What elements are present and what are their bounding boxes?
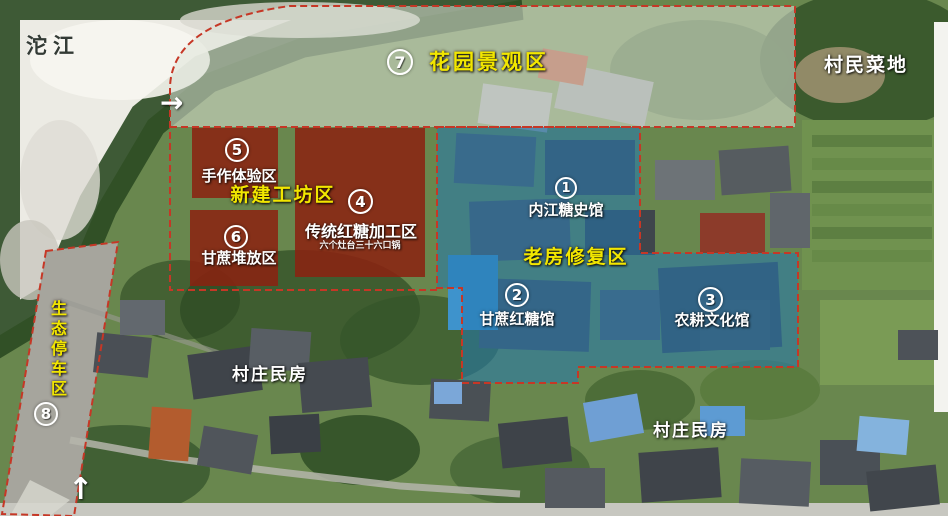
zone4-number-badge: 4 (348, 189, 373, 214)
zone2-brown-sugar-hall-label: 甘蔗红糖馆 (479, 312, 554, 327)
site-plan-map: 沱江 村民菜地 7 花园景观区 5 手作体验区 新建工坊区 6 甘蔗堆放区 4 … (0, 0, 948, 516)
aerial-photo (0, 0, 948, 516)
zone1-number-badge: 1 (555, 177, 577, 199)
zone8-eco-parking-label: 生态停车区 (49, 300, 65, 400)
new-workshop-area-label: 新建工坊区 (230, 186, 335, 205)
flow-arrow-up-icon: ↑ (68, 472, 93, 507)
flow-arrow-right-icon: → (160, 86, 183, 119)
zone2-number-badge: 2 (505, 283, 529, 307)
zone8-number-badge: 8 (34, 402, 58, 426)
zone4-processing-sublabel: 六个灶台三十六口锅 (319, 242, 400, 251)
zone4-processing-label: 传统红糖加工区 (305, 224, 417, 240)
zone3-farming-culture-label: 农耕文化馆 (674, 313, 749, 328)
zone3-number-badge: 3 (698, 287, 723, 312)
zone5-handmade-label: 手作体验区 (201, 169, 276, 184)
vegetable-field-label: 村民菜地 (824, 56, 908, 75)
village-houses-label-southeast: 村庄民房 (653, 423, 729, 440)
zone1-sugar-history-label: 内江糖史馆 (528, 203, 603, 218)
zone5-number-badge: 5 (225, 138, 249, 162)
zone6-sugarcane-stack-label: 甘蔗堆放区 (201, 251, 276, 266)
river-label: 沱江 (26, 36, 80, 57)
zone6-number-badge: 6 (224, 225, 248, 249)
zone7-number-badge: 7 (387, 49, 413, 75)
old-house-restoration-label: 老房修复区 (523, 248, 628, 267)
village-houses-label-west: 村庄民房 (232, 367, 308, 384)
zone7-garden-label: 花园景观区 (429, 52, 549, 73)
